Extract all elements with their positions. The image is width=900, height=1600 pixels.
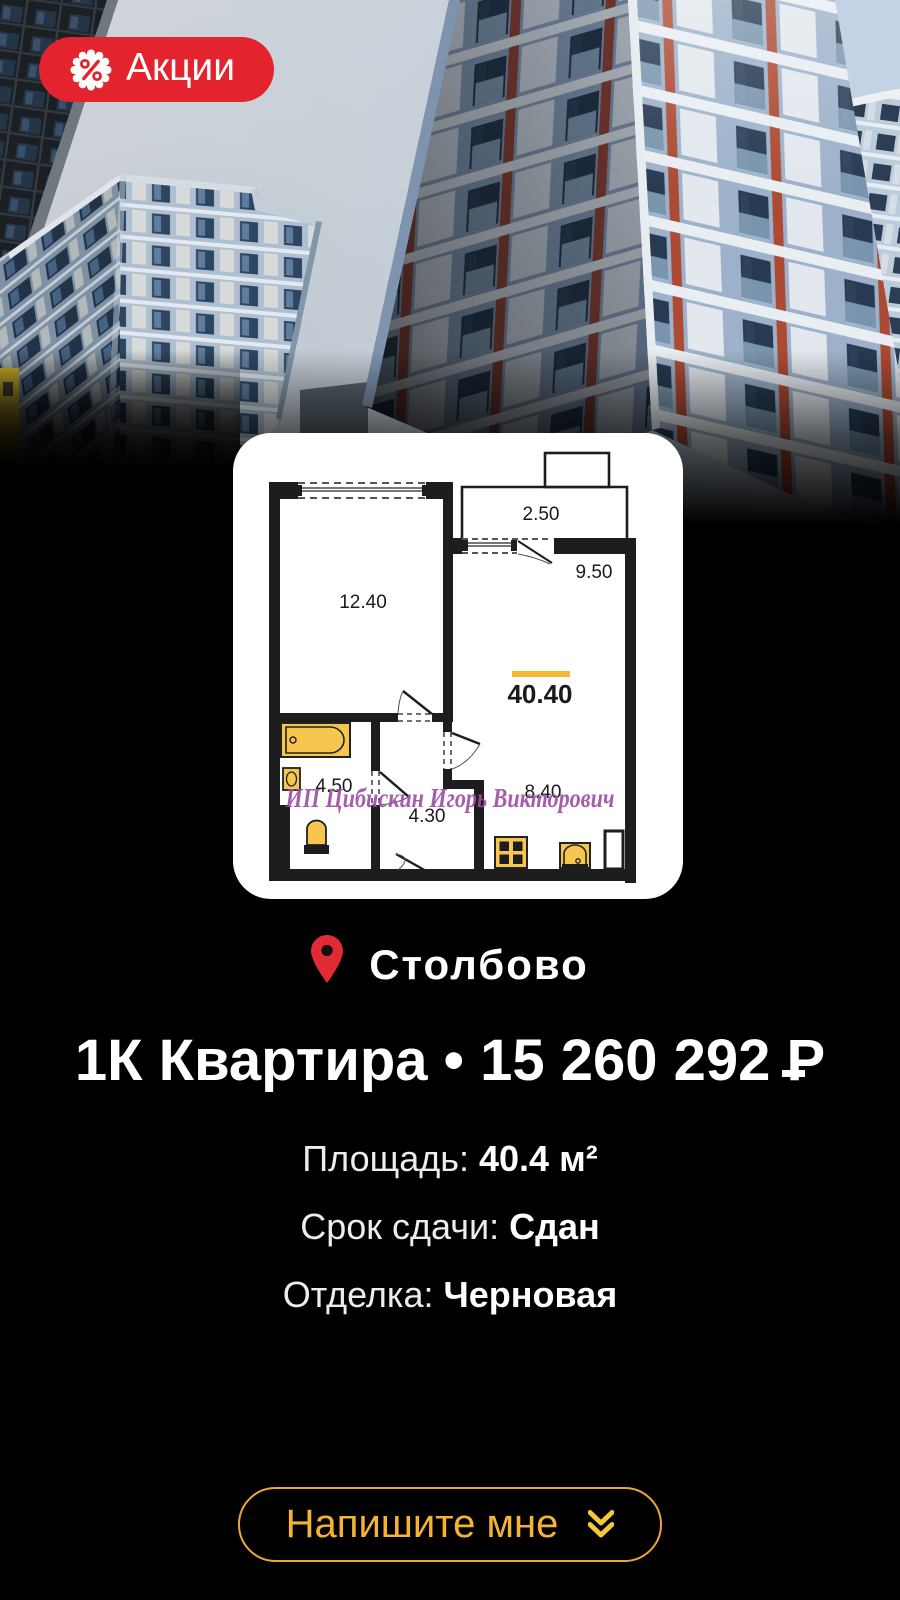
- svg-text:40.40: 40.40: [507, 679, 572, 709]
- svg-text:2.50: 2.50: [523, 504, 560, 525]
- svg-text:9.50: 9.50: [576, 562, 613, 583]
- svg-text:ИП Цибискин Игорь Викторович: ИП Цибискин Игорь Викторович: [285, 784, 615, 814]
- svg-text:12.40: 12.40: [339, 592, 387, 613]
